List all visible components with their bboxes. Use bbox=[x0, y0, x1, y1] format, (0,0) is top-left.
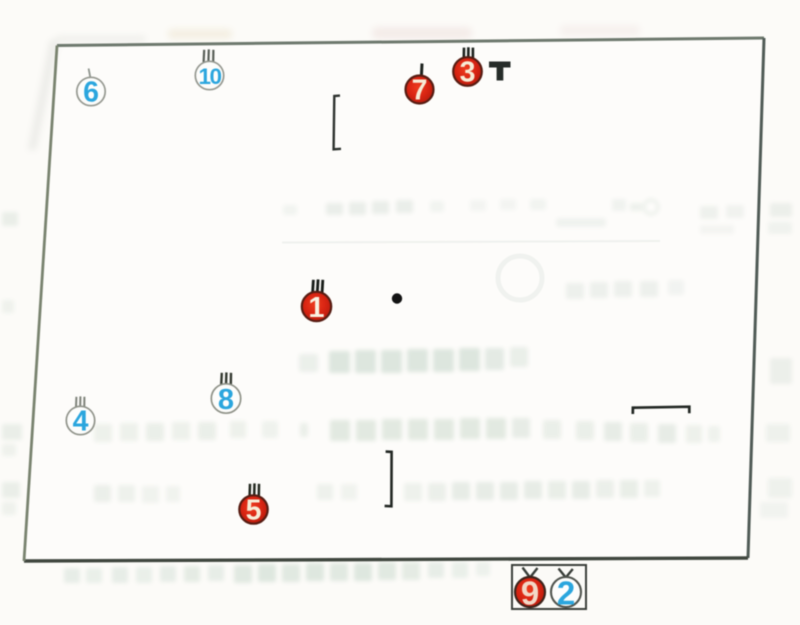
svg-text:8: 8 bbox=[218, 384, 234, 416]
svg-text:5: 5 bbox=[246, 495, 262, 527]
svg-text:6: 6 bbox=[83, 77, 99, 109]
svg-text:1: 1 bbox=[308, 292, 324, 324]
svg-text:10: 10 bbox=[198, 64, 221, 89]
svg-text:3: 3 bbox=[460, 57, 476, 89]
svg-text:4: 4 bbox=[73, 406, 89, 438]
svg-text:2: 2 bbox=[557, 574, 575, 611]
svg-text:9: 9 bbox=[521, 574, 539, 611]
svg-text:7: 7 bbox=[412, 75, 428, 107]
